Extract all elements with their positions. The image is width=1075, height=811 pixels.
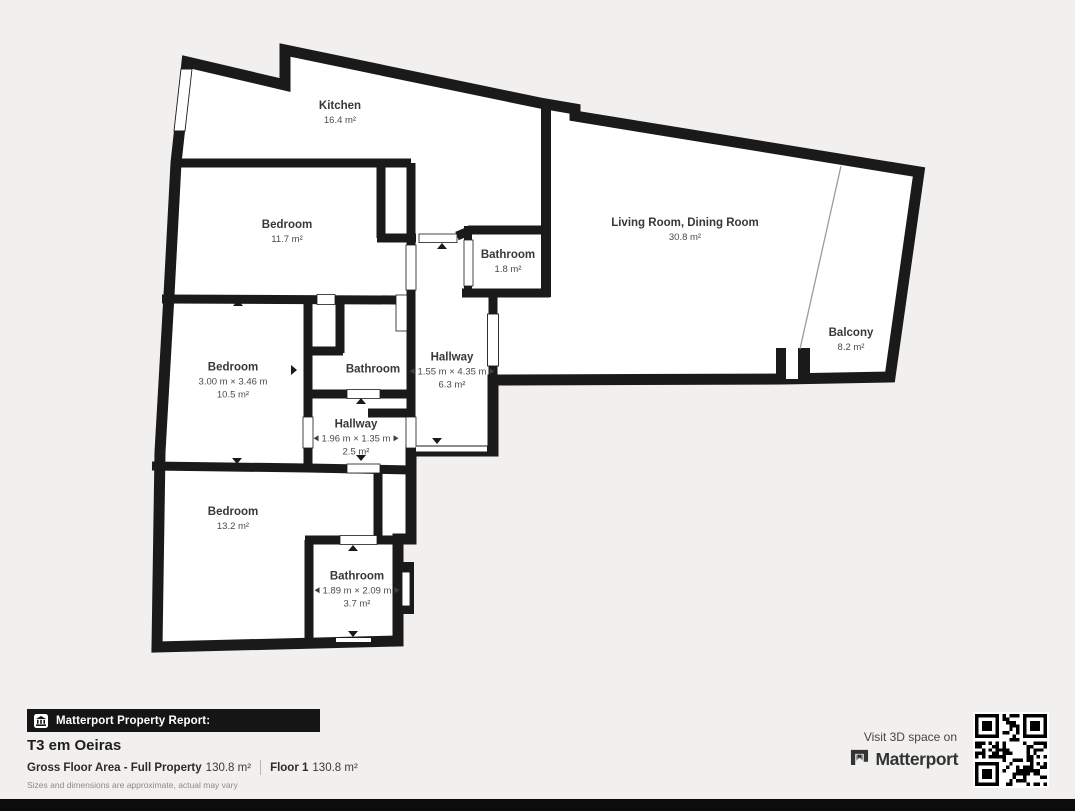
floor-plan <box>0 0 1075 811</box>
room-label: Living Room, Dining Room30.8 m² <box>611 217 759 244</box>
property-report-page: Kitchen16.4 m²Bedroom11.7 m²Bathroom1.8 … <box>0 0 1075 811</box>
disclaimer-text: Sizes and dimensions are approximate, ac… <box>27 780 238 790</box>
floor-label: Floor 1 <box>270 762 308 774</box>
room-name: Bedroom <box>199 361 268 375</box>
visit-3d-text: Visit 3D space on <box>864 730 957 744</box>
room-label: Balcony8.2 m² <box>829 327 874 354</box>
bottom-bar <box>0 799 1075 811</box>
room-label: Kitchen16.4 m² <box>319 100 361 127</box>
room-label: Hallway1.55 m × 4.35 m6.3 m² <box>410 351 495 391</box>
gfa-label: Gross Floor Area - Full Property <box>27 762 202 774</box>
room-name: Balcony <box>829 327 874 341</box>
room-area: 10.5 m² <box>199 388 268 401</box>
room-name: Bedroom <box>262 219 312 233</box>
room-name: Bathroom <box>346 363 400 377</box>
room-name: Kitchen <box>319 100 361 114</box>
room-name: Hallway <box>410 351 495 365</box>
room-label: Bedroom13.2 m² <box>208 506 258 533</box>
matterport-logo-icon <box>850 747 869 771</box>
floor-value: 130.8 m² <box>312 762 357 774</box>
floor-area-stats: Gross Floor Area - Full Property 130.8 m… <box>27 760 358 775</box>
report-banner-label: Matterport Property Report: <box>56 715 210 727</box>
room-dimensions: 3.00 m × 3.46 m <box>199 375 268 388</box>
room-dimensions: 1.89 m × 2.09 m <box>315 584 400 597</box>
room-area: 30.8 m² <box>611 230 759 243</box>
room-area: 8.2 m² <box>829 340 874 353</box>
room-name: Bathroom <box>481 249 535 263</box>
room-label: Hallway1.96 m × 1.35 m2.5 m² <box>314 418 399 458</box>
property-title: T3 em Oeiras <box>27 737 121 754</box>
room-name: Bathroom <box>315 570 400 584</box>
room-area: 2.5 m² <box>314 445 399 458</box>
dimension-arrow-right-icon <box>489 368 494 374</box>
room-area: 6.3 m² <box>410 378 495 391</box>
matterport-brand[interactable]: Matterport <box>850 747 958 771</box>
dimension-arrow-left-icon <box>314 435 319 441</box>
dimension-arrow-right-icon <box>394 587 399 593</box>
room-label: Bathroom1.89 m × 2.09 m3.7 m² <box>315 570 400 610</box>
report-banner: Matterport Property Report: <box>27 709 320 732</box>
dimension-arrow-left-icon <box>315 587 320 593</box>
room-dimensions: 1.55 m × 4.35 m <box>410 365 495 378</box>
room-area: 16.4 m² <box>319 113 361 126</box>
room-label: Bathroom <box>346 363 400 377</box>
room-area: 11.7 m² <box>262 232 312 245</box>
room-label: Bathroom1.8 m² <box>481 249 535 276</box>
qr-code[interactable] <box>973 712 1049 788</box>
room-label: Bedroom11.7 m² <box>262 219 312 246</box>
dimension-arrow-right-icon <box>393 435 398 441</box>
room-area: 13.2 m² <box>208 519 258 532</box>
building-icon <box>34 714 48 728</box>
room-name: Bedroom <box>208 506 258 520</box>
stats-divider <box>260 760 261 775</box>
room-area: 3.7 m² <box>315 597 400 610</box>
room-name: Hallway <box>314 418 399 432</box>
room-area: 1.8 m² <box>481 262 535 275</box>
matterport-wordmark: Matterport <box>875 749 958 770</box>
room-label: Bedroom3.00 m × 3.46 m10.5 m² <box>199 361 268 401</box>
room-dimensions: 1.96 m × 1.35 m <box>314 432 399 445</box>
room-name: Living Room, Dining Room <box>611 217 759 231</box>
gfa-value: 130.8 m² <box>206 762 251 774</box>
dimension-arrow-left-icon <box>410 368 415 374</box>
